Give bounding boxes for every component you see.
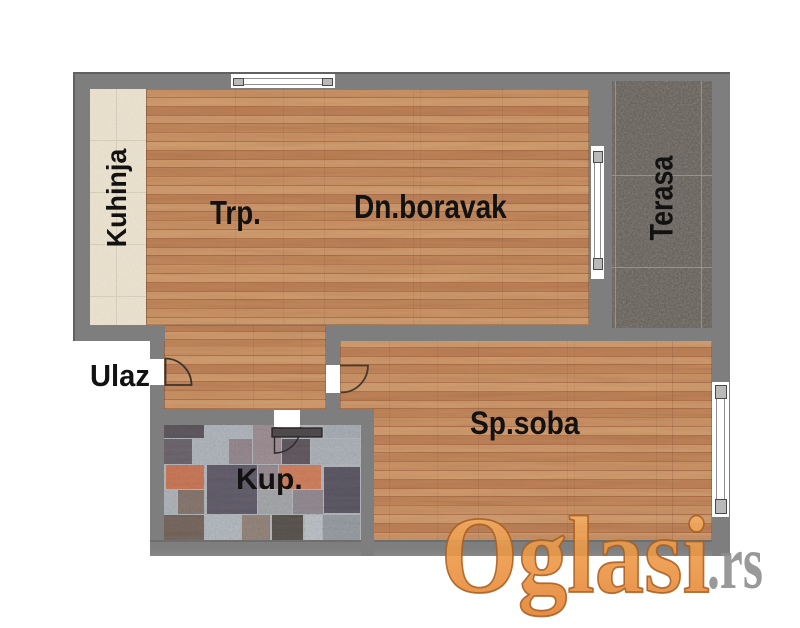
svg-text:Oglasi: Oglasi: [441, 494, 710, 616]
svg-text:.rs: .rs: [707, 521, 763, 605]
